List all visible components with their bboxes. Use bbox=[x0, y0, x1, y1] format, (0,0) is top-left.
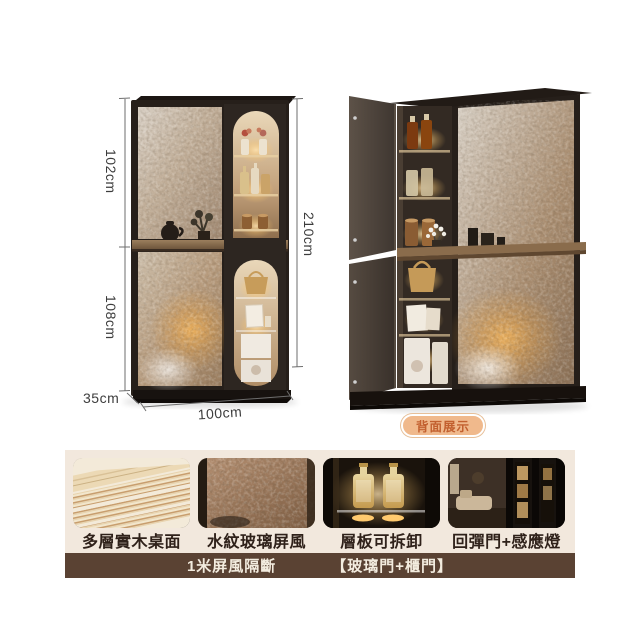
feature-rebound-door: 回彈門+感應燈 bbox=[448, 458, 565, 552]
feature-ripple-glass-label: 水紋玻璃屏風 bbox=[207, 528, 306, 552]
feature-ripple-glass: 水紋玻璃屏風 bbox=[198, 458, 315, 552]
product-image: 102cm 108cm 210cm 35cm 100cm 背面展示 bbox=[0, 0, 640, 640]
front-lower-glass bbox=[138, 252, 234, 392]
feature-wood-top: 多層實木桌面 bbox=[73, 458, 190, 552]
ripple-glass-thumbnail bbox=[198, 458, 315, 528]
rebound-door-thumbnail bbox=[448, 458, 565, 528]
wood-top-thumbnail bbox=[73, 458, 190, 528]
front-cabinet-photo bbox=[122, 96, 298, 408]
front-display-column bbox=[224, 104, 286, 390]
feature-panel: 多層實木桌面 水紋玻璃屏風 bbox=[65, 450, 575, 578]
feature-rebound-door-label: 回彈門+感應燈 bbox=[452, 528, 561, 552]
dim-label-depth: 35cm bbox=[83, 390, 119, 406]
dim-label-upper-height: 102cm bbox=[103, 149, 119, 194]
feature-removable-shelf-label: 層板可拆卸 bbox=[340, 528, 423, 552]
feature-removable-shelf: 層板可拆卸 bbox=[323, 458, 440, 552]
dim-label-total-height: 210cm bbox=[301, 212, 317, 257]
feature-wood-top-label: 多層實木桌面 bbox=[82, 528, 181, 552]
bottom-bar-left-text: 1米屏風隔斷 bbox=[187, 555, 276, 576]
bottom-bar-right-text: 【玻璃門+櫃門】 bbox=[331, 555, 453, 576]
back-cabinet-photo bbox=[349, 88, 592, 413]
dim-label-lower-height: 108cm bbox=[103, 295, 119, 340]
back-view-badge: 背面展示 bbox=[401, 414, 485, 437]
back-open-doors bbox=[349, 96, 396, 400]
bottom-info-bar: 1米屏風隔斷 【玻璃門+櫃門】 bbox=[65, 553, 575, 578]
feature-thumbnails: 多層實木桌面 水紋玻璃屏風 bbox=[65, 450, 575, 552]
removable-shelf-thumbnail bbox=[323, 458, 440, 528]
